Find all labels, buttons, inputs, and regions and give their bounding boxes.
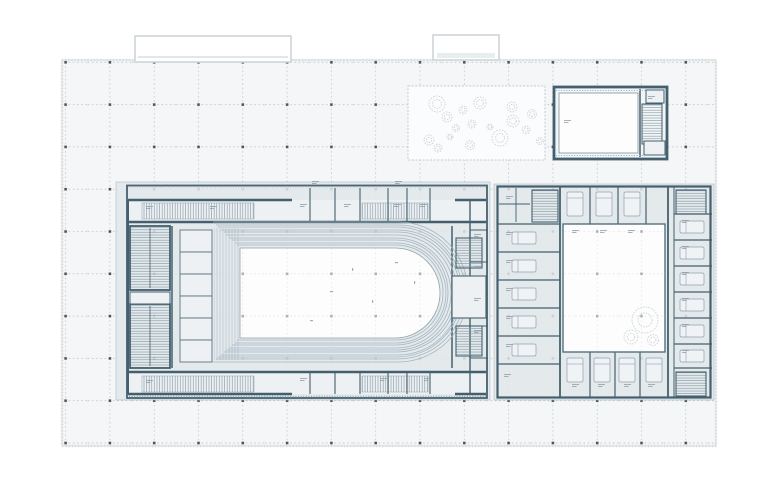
stair-core-court-ne [676,190,706,214]
courtyard: Open courtyard [563,224,665,352]
stair-core-court-nw [532,190,558,222]
floor-plan-canvas: Paved plaza with structural grid West en… [0,0,780,503]
foyer-north: North foyer corridor [128,200,486,222]
courtyard-building: Courtyard service building [494,184,714,400]
floor-plan-sheet: Paved plaza with structural grid West en… [0,0,780,503]
garden-court: Planted garden court [408,86,545,160]
stair-core-northwest: Stair core [130,226,170,290]
parterre-rows [214,228,240,360]
arena-floor: Arena / auditorium floor [240,248,440,338]
canopy-center: Center entrance canopy outline [433,35,499,60]
theater-block: Theater block North foyer corridor South… [116,182,490,400]
foyer-south: South foyer corridor [128,372,486,394]
annex-hall: Detached annex hall with stair [554,87,667,159]
backstage-rooms: Backstage rooms [452,238,486,356]
canopy-west: West entrance canopy outline [135,36,291,62]
stage-platforms: Stage-side platform lifts [180,230,212,362]
west-service-room [130,292,170,304]
stair-core-southwest: Stair core [130,304,170,368]
stair-core-court-se [676,372,706,396]
